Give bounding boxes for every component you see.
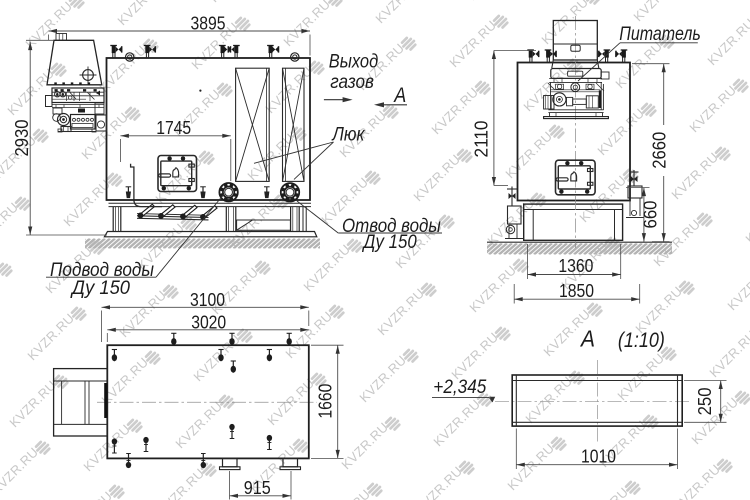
svg-text:(1:10): (1:10): [618, 329, 665, 352]
svg-text:3100: 3100: [190, 290, 225, 310]
svg-text:1010: 1010: [581, 447, 616, 467]
svg-text:2660: 2660: [650, 132, 670, 169]
svg-text:915: 915: [244, 478, 271, 498]
svg-text:2930: 2930: [12, 120, 32, 157]
svg-text:1745: 1745: [156, 118, 191, 138]
svg-text:Ду 150: Ду 150: [70, 278, 130, 299]
svg-text:А: А: [579, 325, 595, 351]
svg-text:Ду 150: Ду 150: [362, 232, 417, 253]
svg-text:Питатель: Питатель: [619, 24, 701, 45]
svg-text:газов: газов: [330, 72, 374, 93]
svg-text:2110: 2110: [472, 121, 492, 158]
svg-text:А: А: [392, 84, 406, 107]
svg-text:3895: 3895: [191, 14, 226, 34]
svg-text:1850: 1850: [559, 281, 594, 301]
svg-text:Выход: Выход: [329, 52, 378, 73]
svg-text:250: 250: [695, 387, 715, 415]
svg-text:1660: 1660: [316, 384, 336, 419]
svg-text:+2,345: +2,345: [433, 377, 486, 398]
svg-text:1360: 1360: [558, 256, 593, 276]
svg-text:660: 660: [641, 201, 661, 229]
svg-text:3020: 3020: [191, 312, 226, 332]
svg-text:Люк: Люк: [331, 125, 366, 146]
